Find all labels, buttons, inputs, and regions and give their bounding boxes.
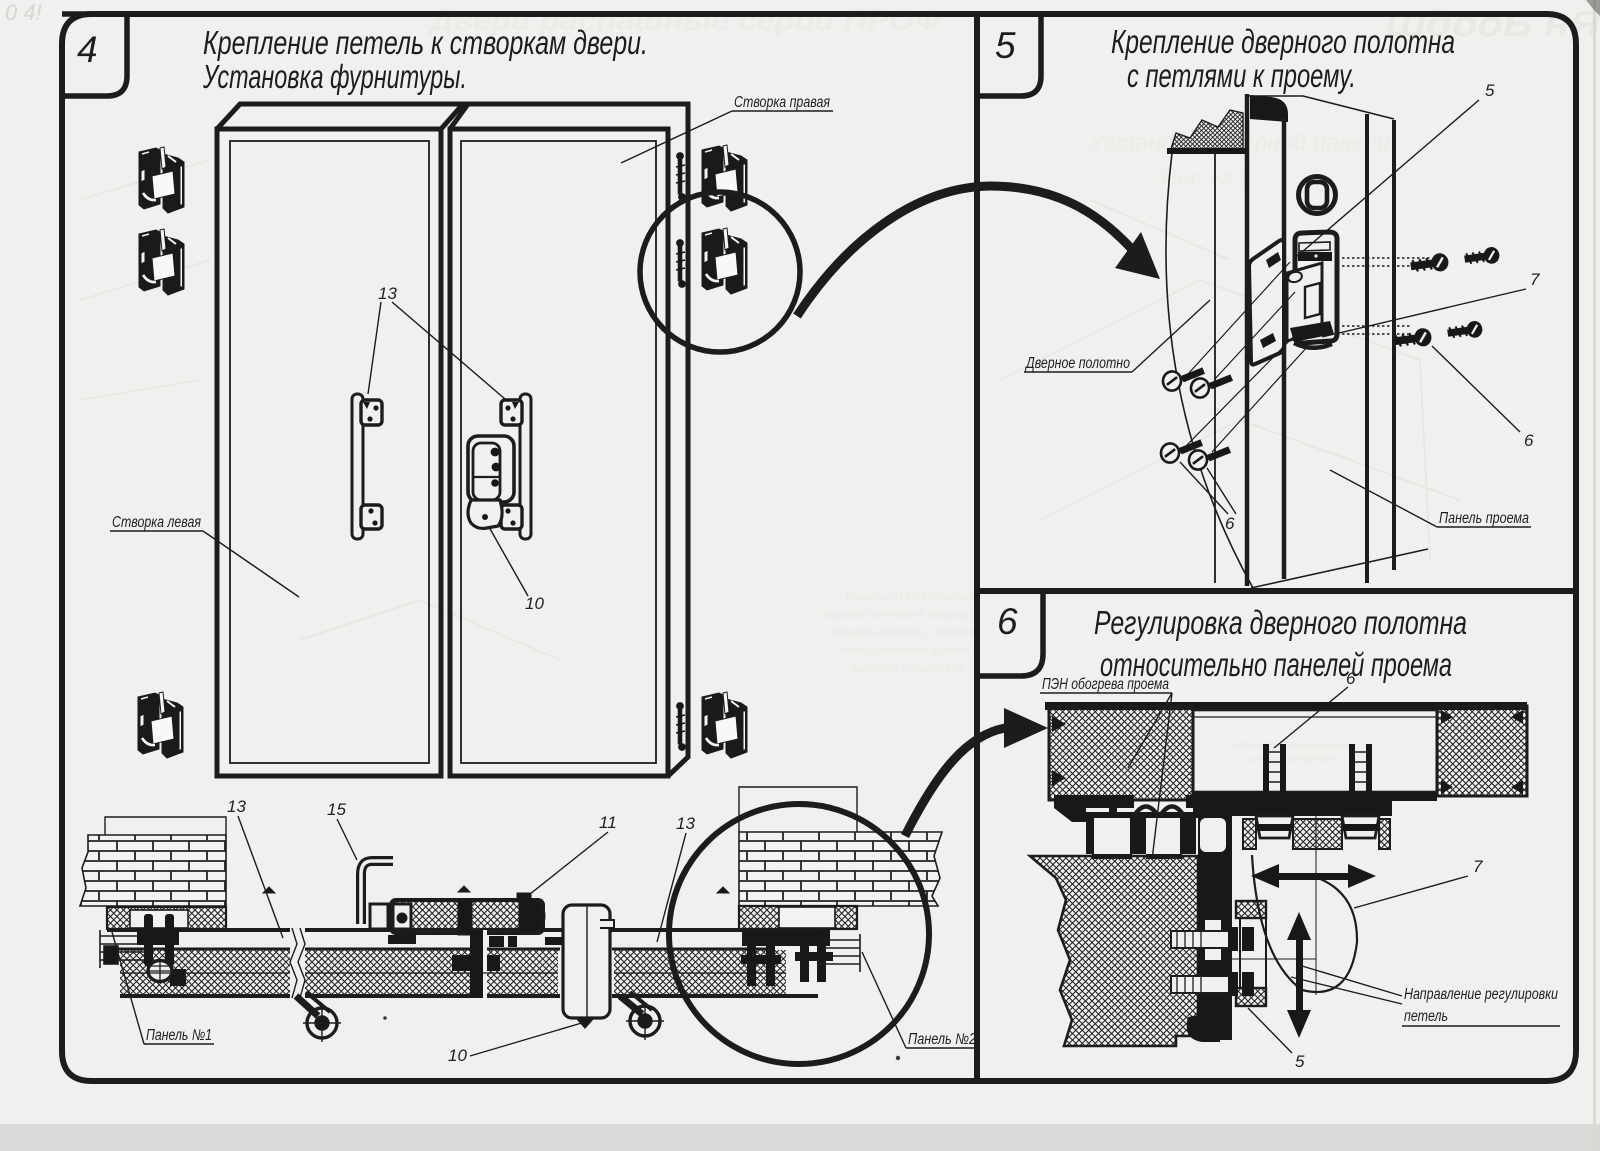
svg-text:7: 7 <box>1530 270 1540 289</box>
svg-text:перекоса петель и зазоров: перекоса петель и зазоров <box>830 625 975 639</box>
svg-text:13: 13 <box>227 797 246 816</box>
svg-text:5: 5 <box>1295 1052 1305 1071</box>
svg-text:0 4!: 0 4! <box>5 0 42 25</box>
svg-text:затяжку проводить: затяжку проводить <box>849 661 965 675</box>
svg-text:Крепление дверного полотна: Крепление дверного полотна <box>1111 23 1455 60</box>
svg-text:дверного полотна не допускать: дверного полотна не допускать <box>820 607 980 621</box>
svg-text:6: 6 <box>997 601 1018 642</box>
svg-text:5: 5 <box>995 25 1016 66</box>
svg-text:6: 6 <box>1346 669 1356 688</box>
svg-text:Установка фурнитуры.: Установка фурнитуры. <box>202 58 467 95</box>
svg-text:Створка правая: Створка правая <box>734 94 830 111</box>
svg-text:Крепление петель к створкам дв: Крепление петель к створкам двери. <box>203 24 648 61</box>
svg-text:Направление регулировки: Направление регулировки <box>1404 986 1558 1003</box>
svg-text:петель: петель <box>1404 1008 1448 1025</box>
svg-text:ПЭН обогрева проема: ПЭН обогрева проема <box>1042 676 1169 693</box>
svg-text:Панель проема: Панель проема <box>1439 510 1529 527</box>
svg-text:13: 13 <box>676 814 695 833</box>
svg-text:10: 10 <box>525 594 544 613</box>
svg-text:15: 15 <box>327 800 346 819</box>
svg-text:10: 10 <box>448 1046 467 1065</box>
svg-text:с петлями к проему.: с петлями к проему. <box>1127 57 1356 94</box>
svg-text:7: 7 <box>1473 857 1483 876</box>
svg-text:Регулировка дверного полотна: Регулировка дверного полотна <box>1094 604 1467 641</box>
svg-text:Внимание! При установке: Внимание! При установке <box>845 589 975 603</box>
svg-text:6: 6 <box>1225 514 1235 533</box>
svg-text:Дверное полотно: Дверное полотно <box>1024 355 1130 372</box>
svg-text:Створка левая: Створка левая <box>112 514 201 531</box>
svg-text:Панель №1: Панель №1 <box>146 1027 212 1044</box>
svg-text:4: 4 <box>77 29 98 70</box>
svg-text:11: 11 <box>599 813 617 832</box>
svg-text:Рис №7: Рис №7 <box>1160 168 1251 190</box>
svg-text:шайба опорная: шайба опорная <box>1245 753 1336 765</box>
svg-text:Панель №2: Панель №2 <box>908 1031 976 1048</box>
svg-text:13: 13 <box>378 284 397 303</box>
svg-text:6: 6 <box>1524 431 1534 450</box>
svg-text:между панелями проема: между панелями проема <box>840 643 970 657</box>
svg-text:подкладка регулировочная: подкладка регулировочная <box>1230 740 1351 751</box>
svg-text:5: 5 <box>1485 81 1495 100</box>
